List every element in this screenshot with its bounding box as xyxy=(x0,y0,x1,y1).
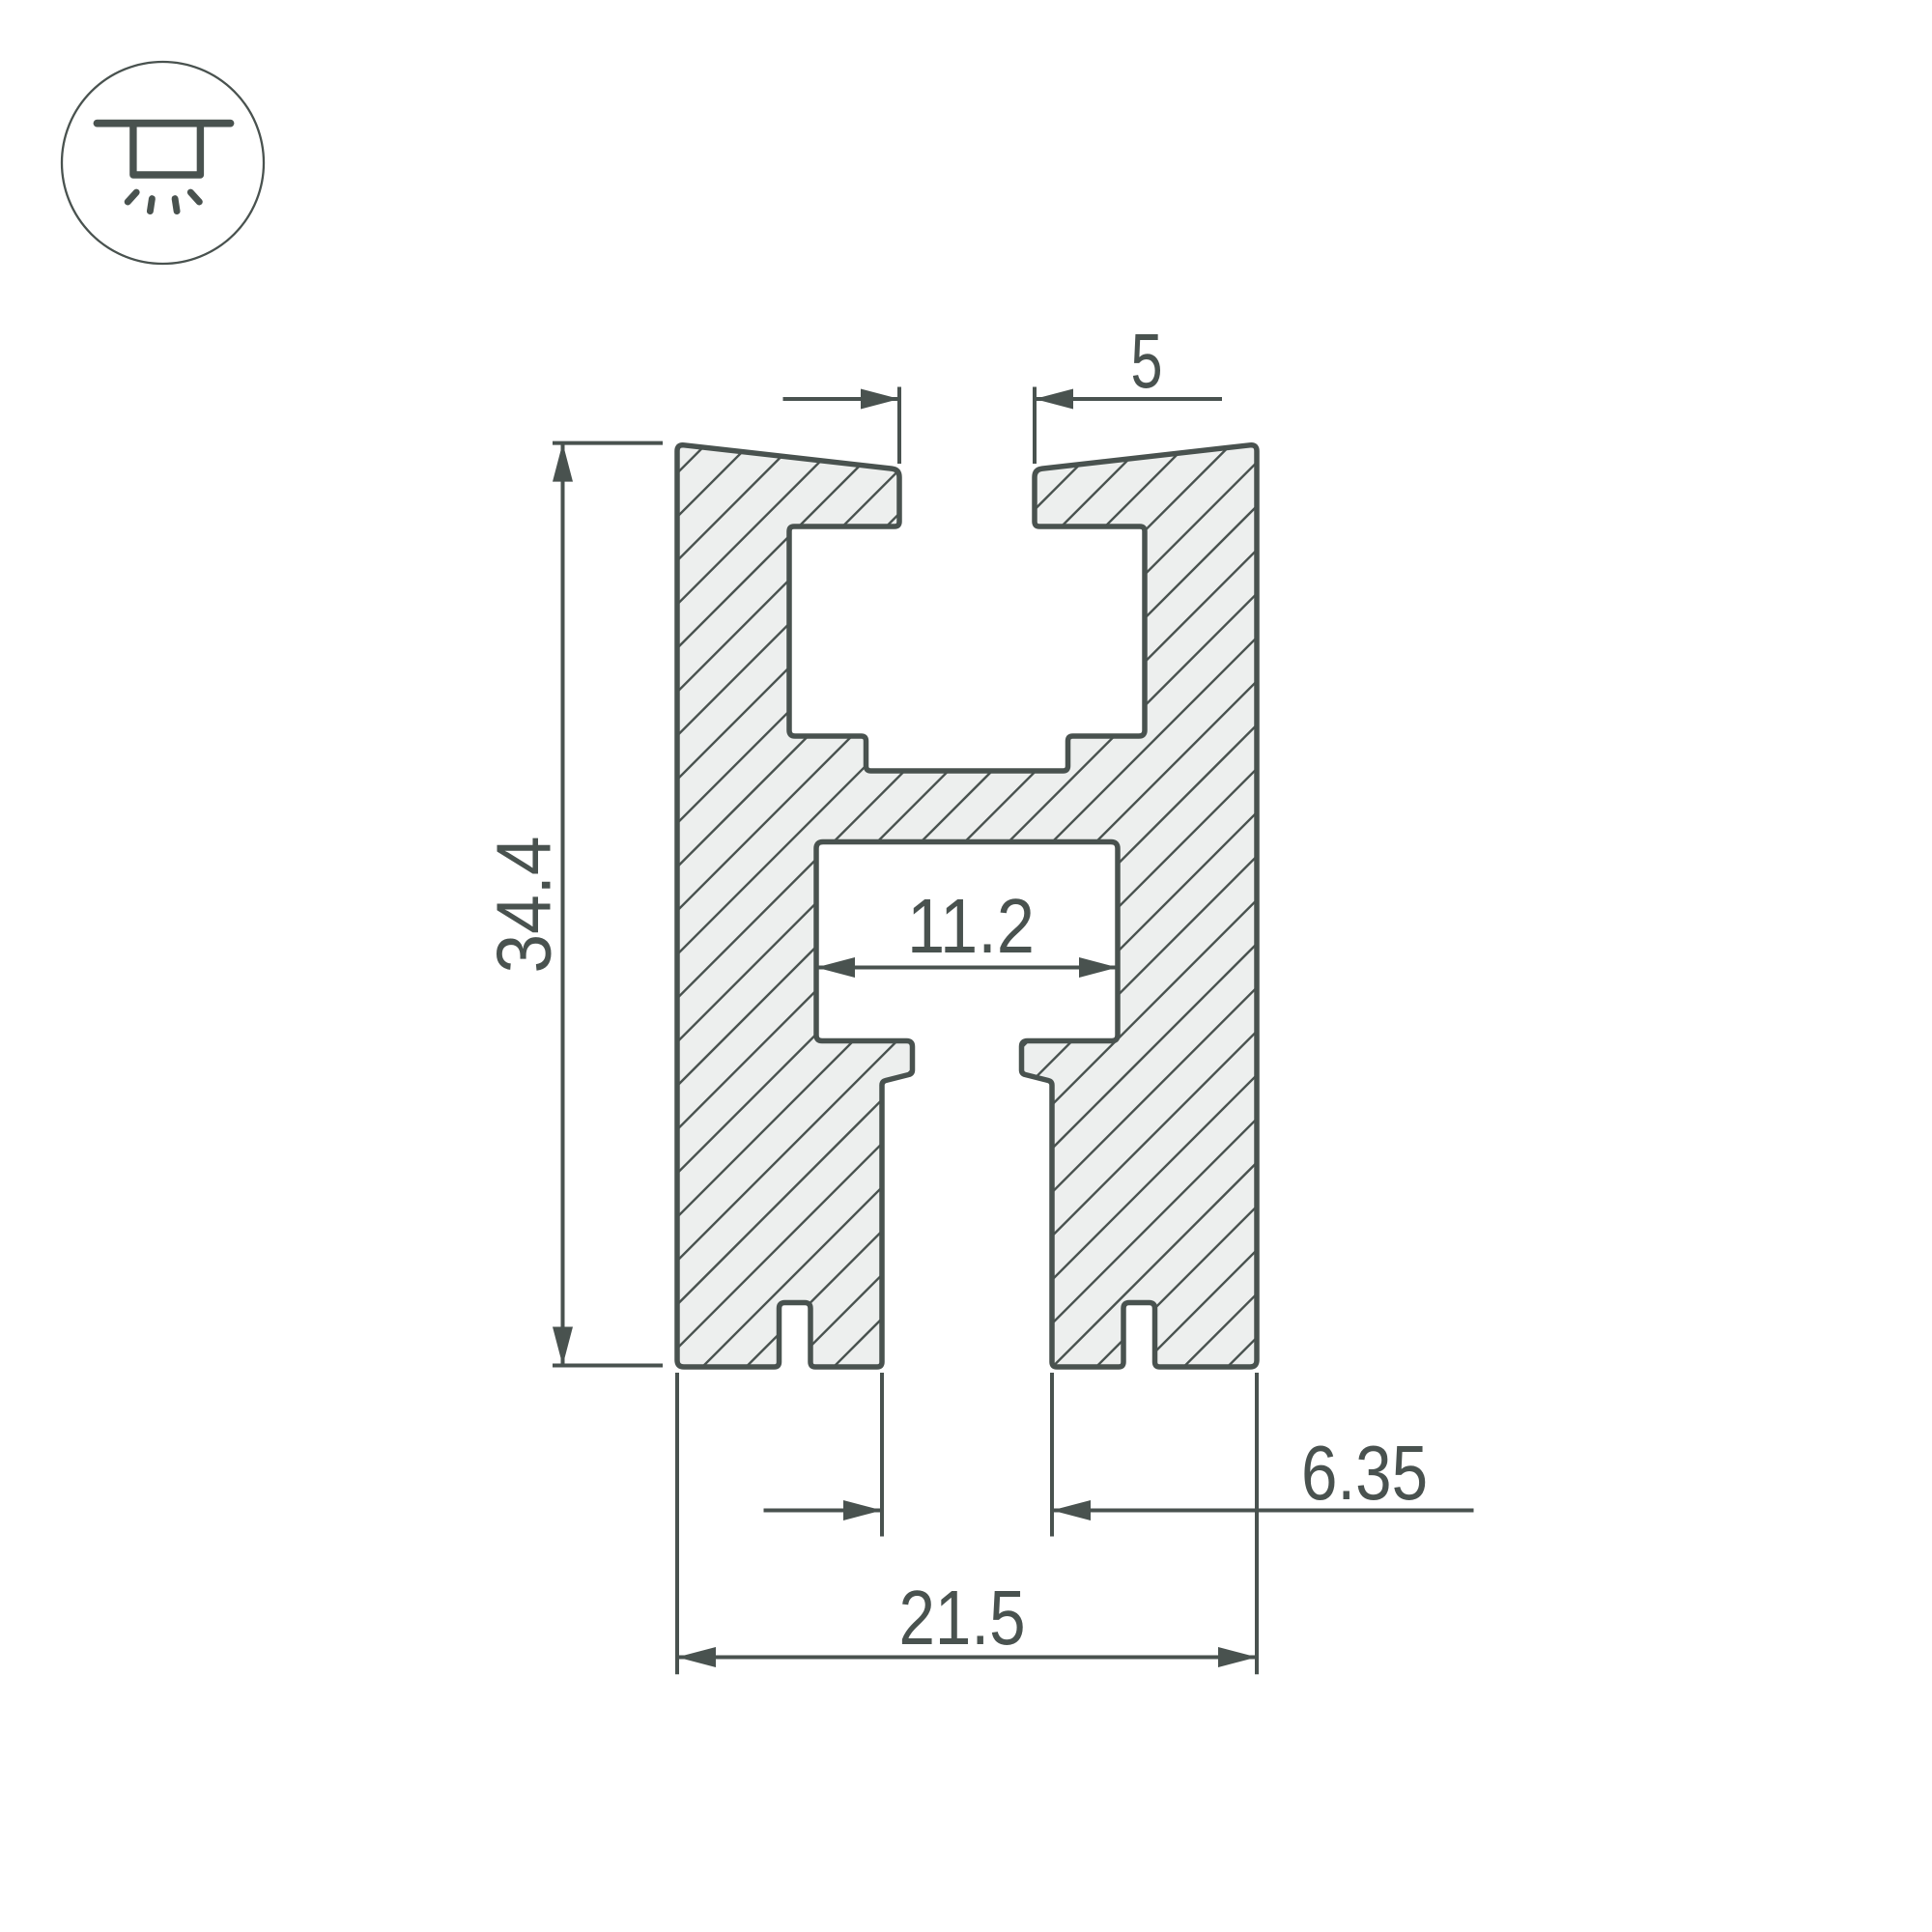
svg-text:5: 5 xyxy=(1131,318,1163,404)
svg-text:11.2: 11.2 xyxy=(907,883,1035,969)
svg-text:34.4: 34.4 xyxy=(481,837,567,974)
svg-text:6.35: 6.35 xyxy=(1301,1430,1428,1516)
svg-text:21.5: 21.5 xyxy=(899,1575,1026,1661)
